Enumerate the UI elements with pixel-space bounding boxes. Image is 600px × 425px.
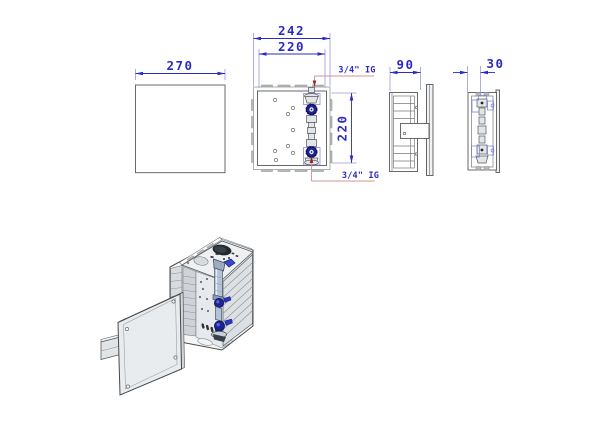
dim-220-width-label: 220 xyxy=(278,39,305,54)
box-inner-left-wall xyxy=(183,267,196,337)
front-view: 242 220 220 3/4" IG xyxy=(252,23,380,181)
side-view-90: 90 xyxy=(390,57,434,176)
dimension-220-height: 220 xyxy=(332,93,357,163)
isometric-view xyxy=(101,238,253,396)
dimension-90: 90 xyxy=(390,57,421,91)
dim-270-label: 270 xyxy=(166,58,193,73)
dim-220-height-label: 220 xyxy=(335,114,350,141)
dimension-30: 30 xyxy=(453,56,505,92)
cover-plate-view: 270 xyxy=(136,58,226,173)
drawing-canvas: 270 xyxy=(0,0,600,425)
mounting-rail-side xyxy=(401,124,430,139)
dim-242-label: 242 xyxy=(278,23,305,38)
technical-drawing: 270 xyxy=(0,0,600,425)
connection-ig-top-label: 3/4" IG xyxy=(338,66,375,76)
end-view-30: 30 xyxy=(453,56,505,173)
cover-plate-iso xyxy=(118,292,185,395)
leader-ig-top: 3/4" IG xyxy=(313,66,376,88)
dim-90-label: 90 xyxy=(396,57,414,72)
connection-ig-bottom-label: 3/4" IG xyxy=(342,171,379,181)
dimension-270: 270 xyxy=(136,58,226,80)
dim-30-label: 30 xyxy=(486,56,504,71)
